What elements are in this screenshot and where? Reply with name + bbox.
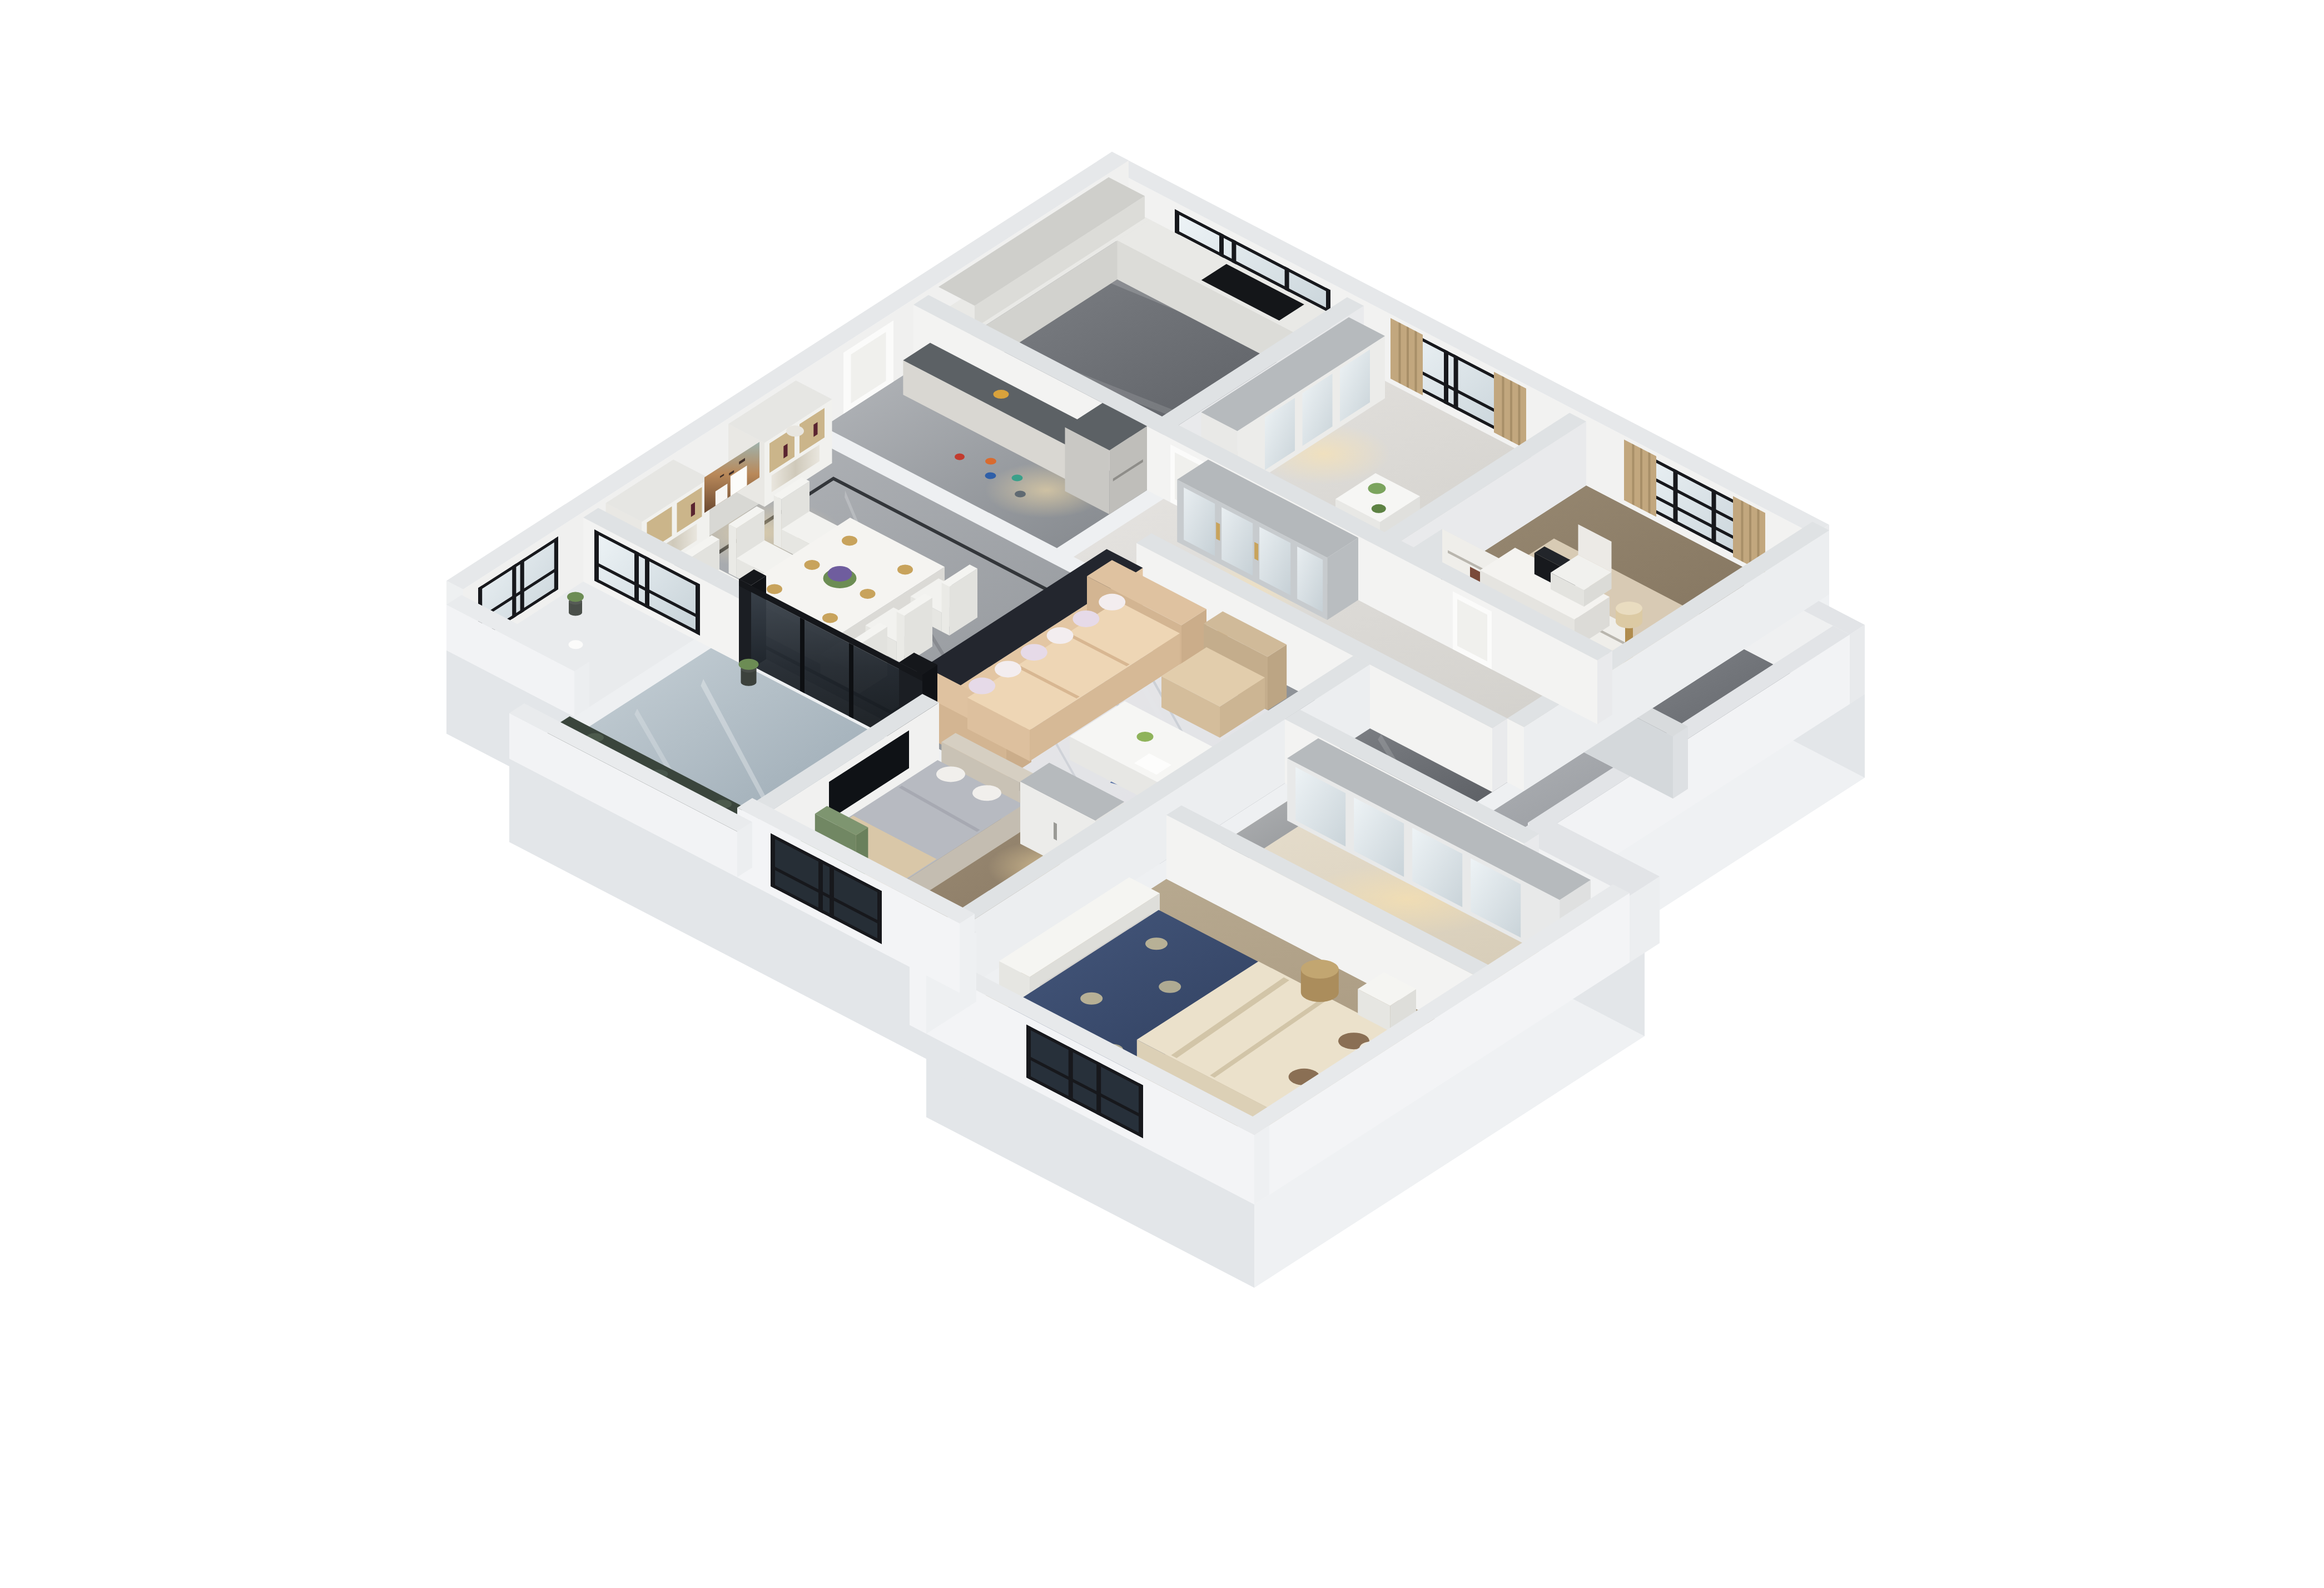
window-cloak-curtain-0-pleat-1	[1399, 322, 1401, 384]
cloak-plant-2	[1372, 504, 1386, 513]
wall-master-sw-face-se	[1254, 1125, 1269, 1204]
window-dining-frame-l	[594, 529, 599, 583]
window-study-curtain-0-pleat-1	[1632, 444, 1635, 505]
sofa-pillow-2	[1072, 611, 1099, 627]
shoe-heel-3	[1012, 475, 1023, 482]
render-canvas: 3D isometric cutaway floor-plan render o…	[0, 0, 2324, 1588]
small-balcony-bird	[569, 640, 583, 649]
shoe-heel-2	[985, 473, 996, 479]
dining-chair-se1-back-face-sw	[942, 583, 950, 636]
charger-plate-2	[805, 560, 820, 570]
window-cloak-bar-v0	[1444, 349, 1448, 405]
window-balcony-nw-frame-l	[554, 537, 558, 592]
window-balcony-nw-bar-v1	[512, 564, 516, 619]
sofa-pillow-1	[1099, 594, 1125, 611]
charger-plate-1	[842, 535, 857, 545]
window-cloak-curtain-1-pleat-1	[1502, 376, 1504, 438]
window-master-frame-l	[1026, 1025, 1031, 1080]
wall-wing-ne-face-se	[1850, 625, 1865, 704]
window-study-bar-v1	[1712, 488, 1716, 544]
wall-study-wing-face-sw	[1507, 718, 1524, 791]
shoe-cabinet-deco	[994, 390, 1009, 399]
window-study-curtain-1-pleat-2	[1749, 504, 1751, 566]
charger-plate-5	[860, 589, 876, 599]
centerpiece-flowers	[828, 566, 852, 582]
window-master-bar-v1	[1096, 1061, 1101, 1116]
wall-bedroom2-sw-face-se	[960, 914, 975, 992]
window-bedroom2-bar-v0	[818, 858, 823, 914]
sofa-pillow-3	[1047, 627, 1074, 644]
wine-bottle-3	[691, 502, 695, 517]
window-cloak-curtain-1-pleat-2	[1510, 380, 1512, 442]
small-balcony-parapet-face-se	[574, 662, 589, 717]
shoe-heel-4	[1015, 491, 1026, 498]
window-study-bar-v0	[1674, 468, 1678, 524]
balcony-pot-plant	[739, 659, 759, 670]
window-bedroom2-bar-v1	[830, 864, 834, 919]
rug-leaf-3	[1080, 992, 1103, 1005]
balcony-door-mullion-1	[800, 618, 805, 693]
coffee-table-plant	[1137, 732, 1154, 742]
window-bedroom2-frame-l	[771, 833, 775, 889]
window-study-curtain-0-pleat-3	[1648, 452, 1651, 514]
dining-chair-se2-back-face-sw	[897, 612, 905, 664]
bedroom2-pillow-1	[936, 766, 965, 782]
bedroom2-pillow-2	[972, 785, 1001, 801]
cloak-plant-1	[1368, 483, 1386, 494]
wall-living-hall-face-se	[1492, 718, 1507, 792]
sofa-pillow-6	[969, 678, 995, 694]
bedroom2-wardrobe-handles	[1054, 822, 1057, 841]
window-balcony-nw-bar-v0	[520, 558, 524, 614]
balcony-door-mullion-2	[849, 643, 853, 718]
charger-plate-3	[767, 584, 782, 594]
floor-lamp-shade-top	[1616, 602, 1642, 615]
sideboard-flowers	[786, 425, 804, 436]
window-dining-frame-r	[696, 582, 700, 636]
window-cloak-curtain-0-pleat-2	[1407, 326, 1409, 388]
balcony-parapet-face-se	[737, 822, 752, 877]
charger-plate-4	[897, 564, 913, 574]
dining-chair-nw1-back-face-sw	[774, 495, 782, 548]
window-cloak-bar-v1	[1454, 354, 1458, 410]
shoe-heel-1	[985, 458, 996, 465]
small-balcony-plant	[567, 592, 584, 602]
shoe-heel-5	[955, 453, 965, 460]
wine-bottle-2	[783, 444, 787, 459]
floorplan-render: 3D isometric cutaway floor-plan render o…	[0, 0, 2324, 1588]
master-stool-top	[1301, 960, 1339, 979]
window-study-curtain-0-pleat-2	[1640, 448, 1642, 509]
window-cloak-curtain-0-pleat-3	[1415, 331, 1417, 393]
window-dining-bar-v1	[645, 556, 649, 609]
window-dining-bar-v0	[634, 550, 639, 604]
wine-bottle-1	[813, 422, 817, 437]
glass-cabinet-handle-1	[1216, 522, 1220, 541]
window-study-curtain-1-pleat-1	[1741, 500, 1744, 562]
wall-topwing-south-face-se	[1597, 651, 1612, 724]
rug-leaf-1	[1145, 937, 1168, 950]
window-master-frame-r	[1139, 1083, 1143, 1138]
glass-cabinet-handle-2	[1254, 542, 1258, 561]
window-cloak-curtain-1-pleat-3	[1518, 384, 1521, 446]
window-master-bar-v0	[1069, 1046, 1073, 1101]
dining-chair-nw2-back-face-sw	[729, 524, 737, 577]
wall-bath-divider-face-se	[1673, 727, 1688, 798]
charger-plate-6	[822, 613, 838, 623]
sofa-pillow-5	[995, 661, 1021, 677]
sofa-pillow-4	[1021, 644, 1047, 661]
rug-leaf-2	[1159, 981, 1181, 993]
balcony-door-frame-left-face-sw	[739, 579, 751, 668]
window-bedroom2-frame-r	[877, 889, 882, 944]
